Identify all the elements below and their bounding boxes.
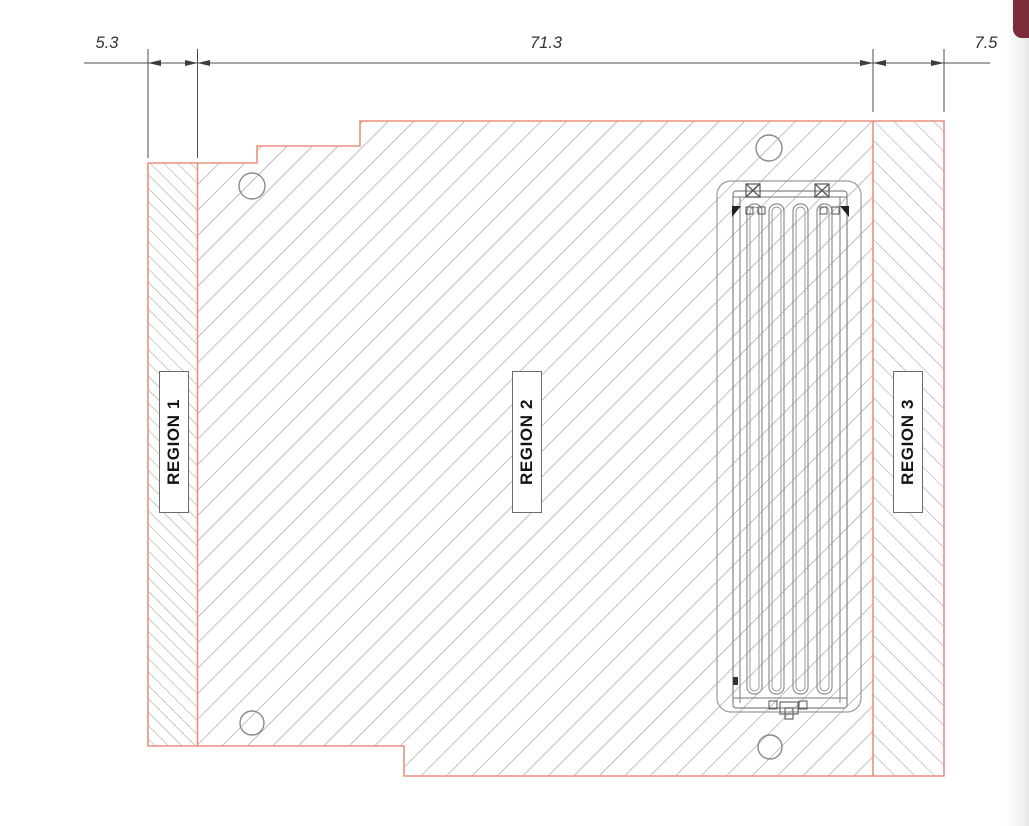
corner-badge[interactable] bbox=[1013, 0, 1029, 38]
region-3-label: REGION 3 bbox=[893, 371, 923, 513]
drawing-canvas: 5.3 71.3 7.5 REGION 1 REGION 2 REGION 3 bbox=[0, 0, 1029, 826]
dimension-value-right: 7.5 bbox=[956, 34, 1016, 53]
dimension-value-left: 5.3 bbox=[77, 34, 137, 53]
region-2-label: REGION 2 bbox=[512, 371, 542, 513]
region-1-label: REGION 1 bbox=[159, 371, 189, 513]
dimension-value-middle: 71.3 bbox=[506, 34, 586, 53]
